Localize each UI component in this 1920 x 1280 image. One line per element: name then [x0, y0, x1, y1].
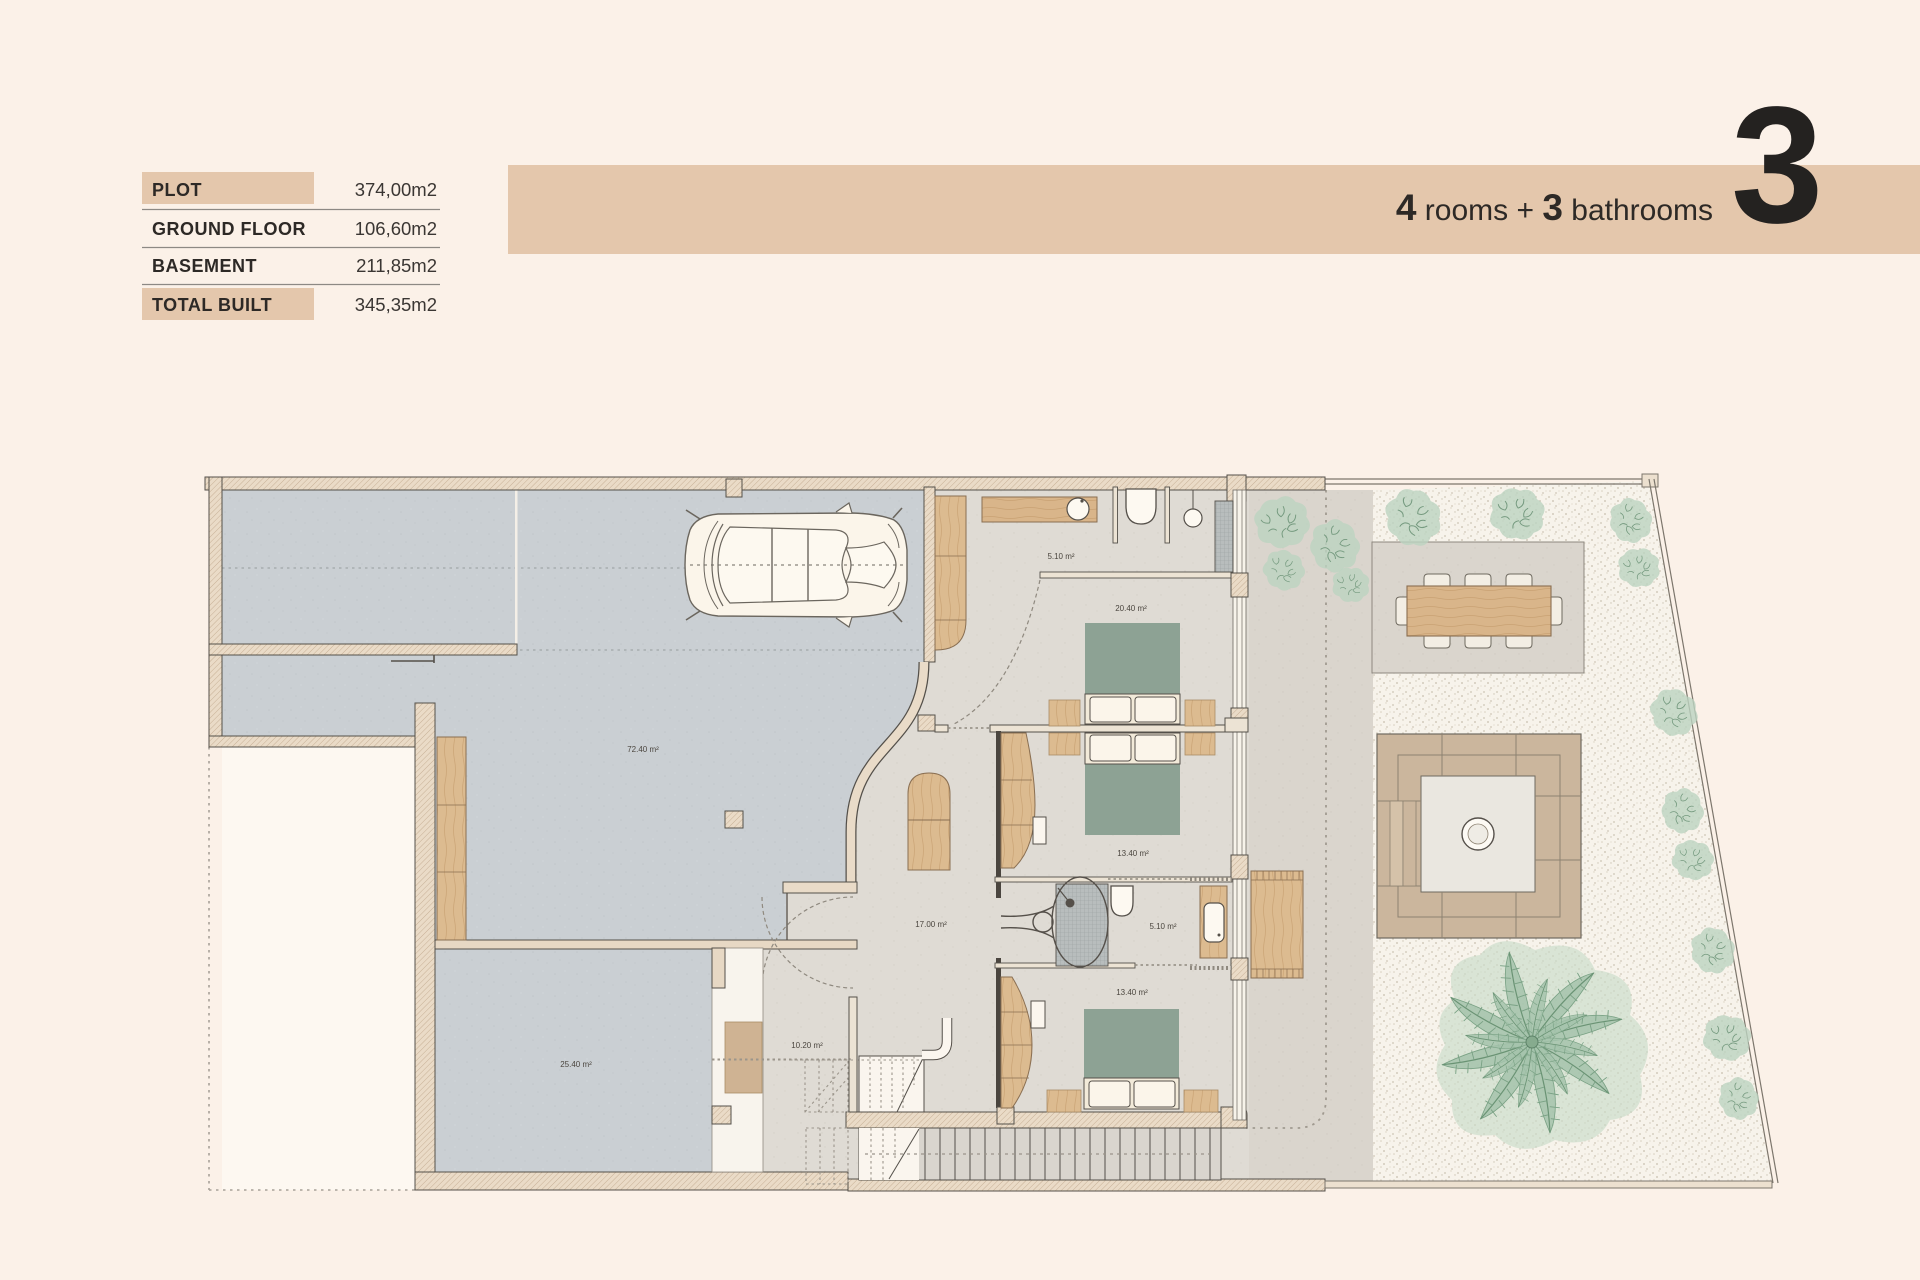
svg-text:211,85m2: 211,85m2 [356, 255, 437, 276]
svg-text:106,60m2: 106,60m2 [355, 218, 437, 239]
svg-text:GROUND FLOOR: GROUND FLOOR [152, 219, 306, 239]
svg-text:25.40 m²: 25.40 m² [560, 1060, 592, 1069]
svg-text:4 rooms + 3 bathrooms: 4 rooms + 3 bathrooms [1396, 187, 1713, 228]
svg-text:PLOT: PLOT [152, 180, 202, 200]
svg-text:17.00 m²: 17.00 m² [915, 920, 947, 929]
svg-text:TOTAL BUILT: TOTAL BUILT [152, 295, 272, 315]
svg-text:13.40 m²: 13.40 m² [1117, 849, 1149, 858]
svg-text:10.20 m²: 10.20 m² [791, 1041, 823, 1050]
svg-text:3: 3 [1731, 73, 1823, 258]
svg-text:5.10 m²: 5.10 m² [1149, 922, 1176, 931]
svg-text:5.10 m²: 5.10 m² [1047, 552, 1074, 561]
svg-text:BASEMENT: BASEMENT [152, 256, 257, 276]
svg-text:20.40 m²: 20.40 m² [1115, 604, 1147, 613]
svg-text:374,00m2: 374,00m2 [355, 179, 437, 200]
svg-text:345,35m2: 345,35m2 [355, 294, 437, 315]
svg-text:72.40 m²: 72.40 m² [627, 745, 659, 754]
svg-text:13.40 m²: 13.40 m² [1116, 988, 1148, 997]
